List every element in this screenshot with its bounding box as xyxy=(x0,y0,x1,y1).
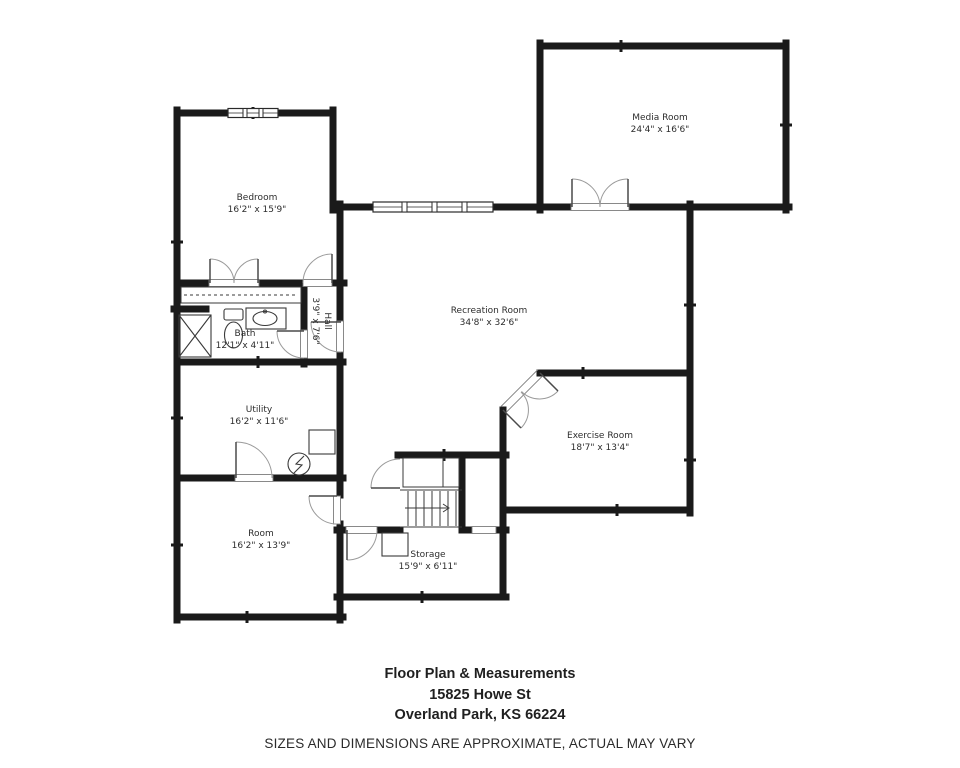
bedroom-closet-rod xyxy=(181,287,301,303)
recreation-window xyxy=(373,202,493,212)
hall-door-threshold xyxy=(337,321,344,352)
utility-door-threshold xyxy=(235,475,273,482)
floor-plan-drawing xyxy=(0,0,960,768)
bath-door-threshold xyxy=(301,330,308,358)
stair-landing-closet xyxy=(403,458,459,487)
vestibule-door-threshold xyxy=(472,527,496,534)
shower xyxy=(179,315,211,357)
bathroom-sink xyxy=(246,308,286,329)
wall-tick-marks xyxy=(171,40,792,623)
staircase xyxy=(400,458,462,527)
door-thresholds xyxy=(209,204,629,534)
bedroom-door-threshold xyxy=(303,280,332,287)
bedroom-window xyxy=(228,109,278,118)
footer-disclaimer: SIZES AND DIMENSIONS ARE APPROXIMATE, AC… xyxy=(0,736,960,751)
windows xyxy=(228,109,493,213)
utility-fixtures xyxy=(288,430,408,556)
water-heater xyxy=(309,430,335,454)
electrical-equipment xyxy=(288,453,310,475)
footer-title: Floor Plan & Measurements xyxy=(0,664,960,685)
footer-address-block: Floor Plan & Measurements 15825 Howe St … xyxy=(0,664,960,726)
bath-fixtures xyxy=(179,287,301,357)
stair-direction-arrow xyxy=(405,504,449,512)
footer-address-line2: Overland Park, KS 66224 xyxy=(0,705,960,726)
room-door-threshold xyxy=(334,496,341,524)
storage-fixture xyxy=(382,533,408,556)
footer-address-line1: 15825 Howe St xyxy=(0,685,960,706)
toilet xyxy=(224,309,243,348)
floor-plan-page: Media Room24'4" x 16'6"Bedroom16'2" x 15… xyxy=(0,0,960,768)
storage-door-threshold xyxy=(346,527,377,534)
